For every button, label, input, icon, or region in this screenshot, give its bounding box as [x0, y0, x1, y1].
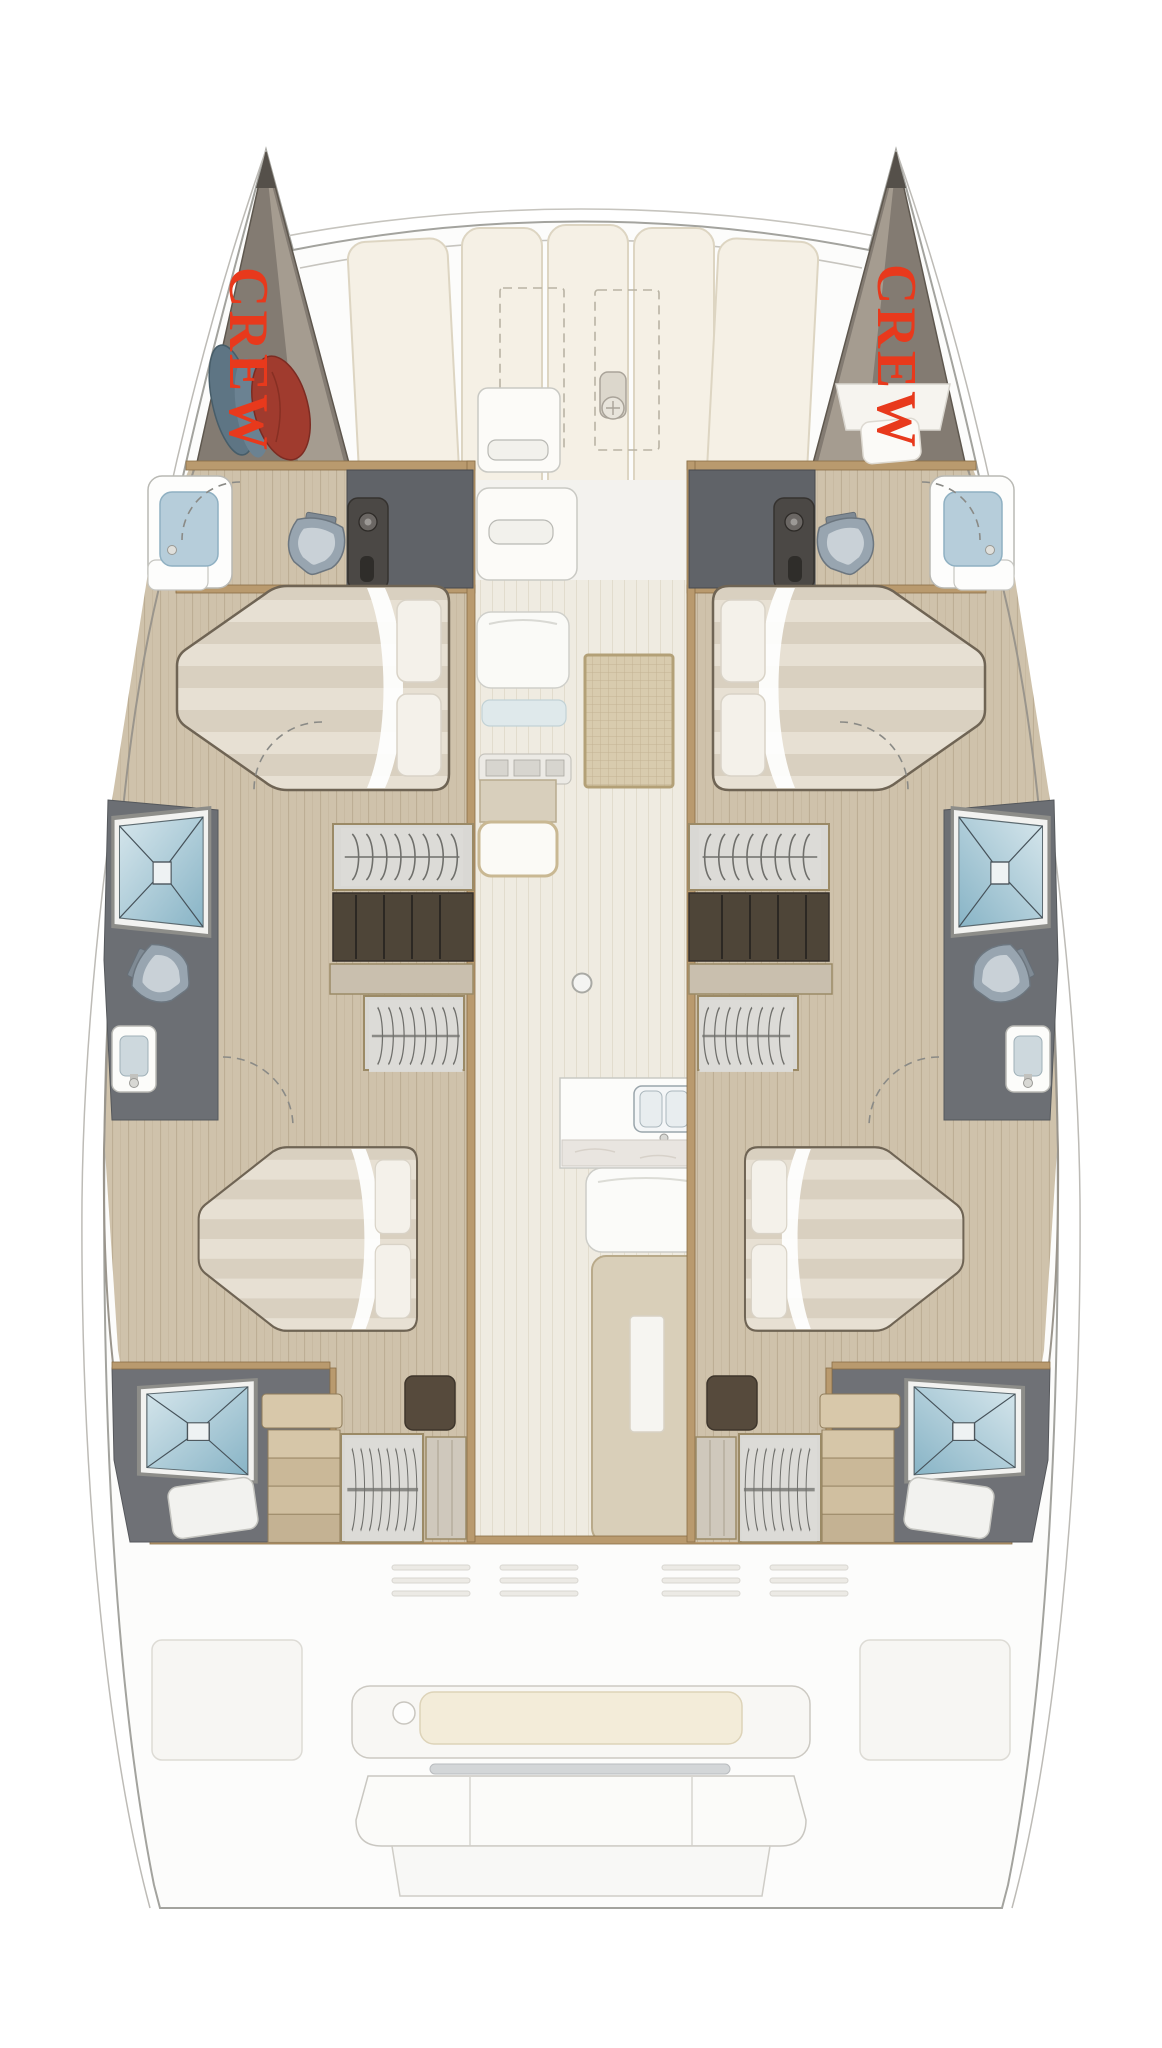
galley-forward-module [478, 388, 560, 472]
galley-counter [562, 1140, 702, 1166]
saloon-step [482, 700, 566, 726]
saloon-rug [585, 655, 673, 787]
crew-label-port: CREW [217, 267, 279, 453]
windlass [600, 372, 626, 419]
swim-platform [392, 1846, 770, 1896]
aft-step-port [152, 1640, 302, 1760]
cockpit-bench-cushion [420, 1692, 742, 1744]
nav-desk [477, 488, 577, 580]
deck-plan-page: CREW CREW [0, 0, 1162, 2048]
crew-label-starboard: CREW [865, 264, 927, 450]
table-inset [630, 1316, 664, 1432]
aft-step-starboard [860, 1640, 1010, 1760]
helm-seat [479, 822, 557, 876]
compression-post [573, 974, 592, 993]
bench-knob [393, 1702, 415, 1724]
galley [560, 1078, 702, 1168]
deck-plan-drawing: CREW CREW [0, 0, 1162, 2048]
cockpit-bench [352, 1686, 810, 1758]
helm-seat-base [480, 780, 556, 822]
transom-step [356, 1776, 806, 1846]
transom-handle [430, 1764, 730, 1774]
